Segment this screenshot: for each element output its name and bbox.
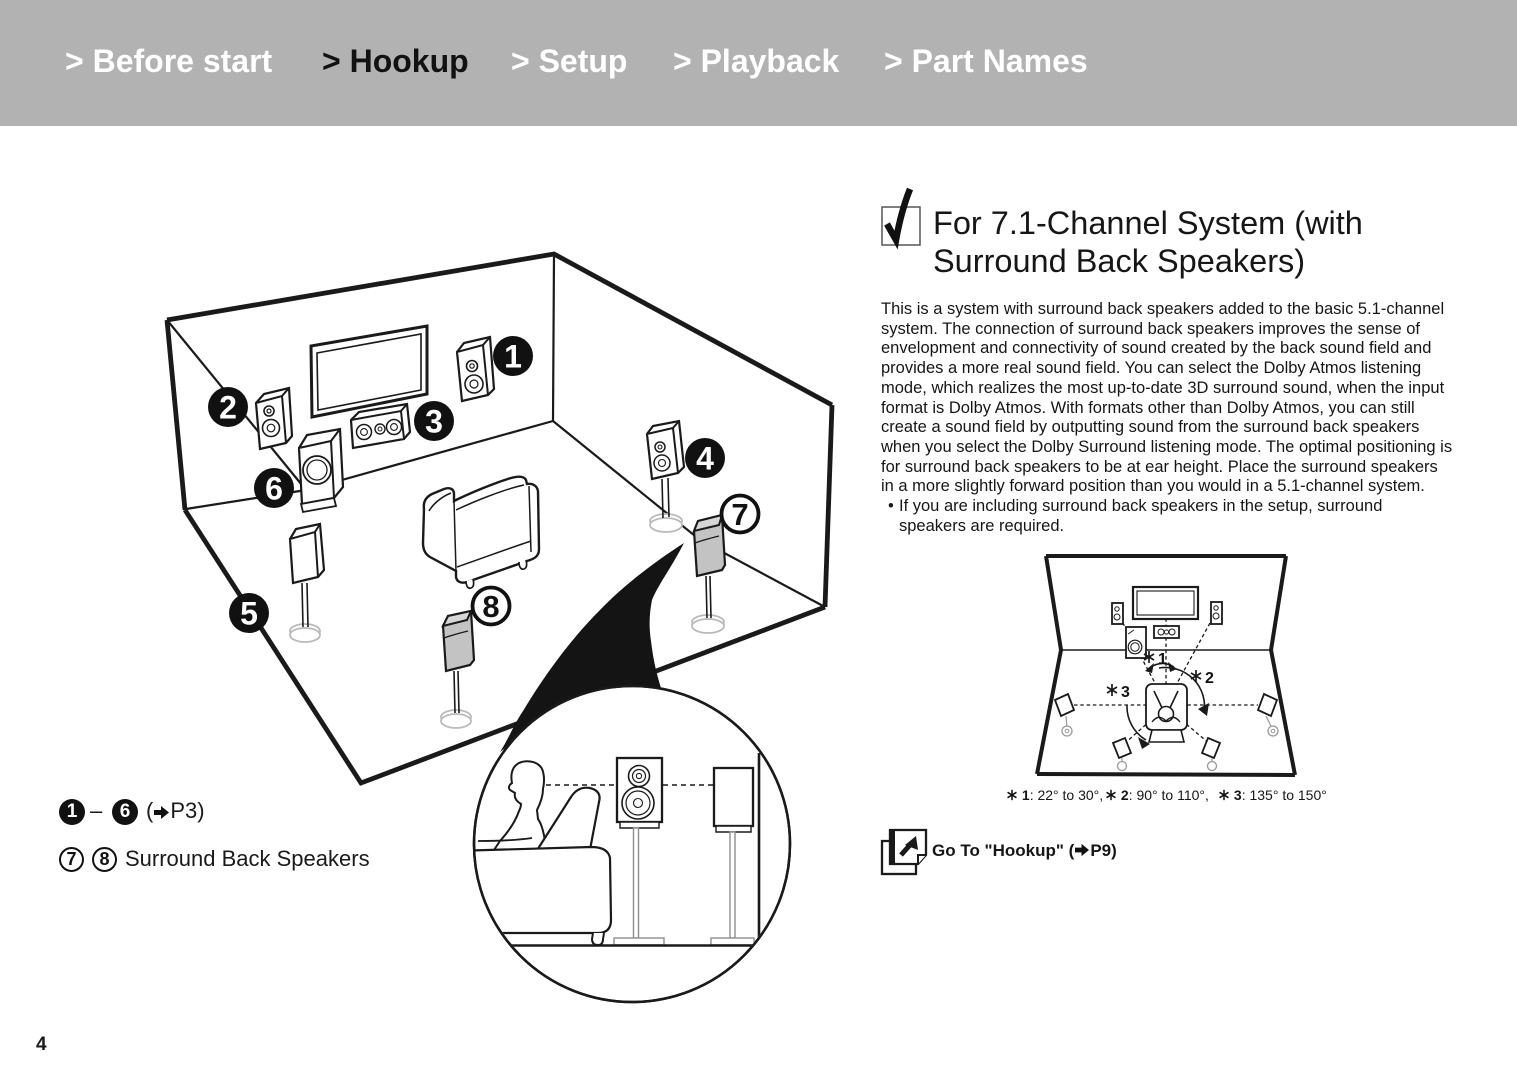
svg-text:1: 1	[504, 339, 522, 375]
svg-text:3: 3	[425, 404, 443, 440]
svg-text:2: 2	[1205, 670, 1214, 687]
svg-text:3: 3	[1121, 684, 1130, 701]
svg-text:7: 7	[731, 497, 748, 532]
svg-text:1: 1	[1158, 651, 1167, 668]
svg-text:6: 6	[265, 471, 283, 507]
svg-text:5: 5	[240, 596, 258, 632]
svg-text:2: 2	[219, 390, 237, 426]
svg-text:4: 4	[696, 441, 714, 477]
svg-text:8: 8	[482, 589, 499, 624]
